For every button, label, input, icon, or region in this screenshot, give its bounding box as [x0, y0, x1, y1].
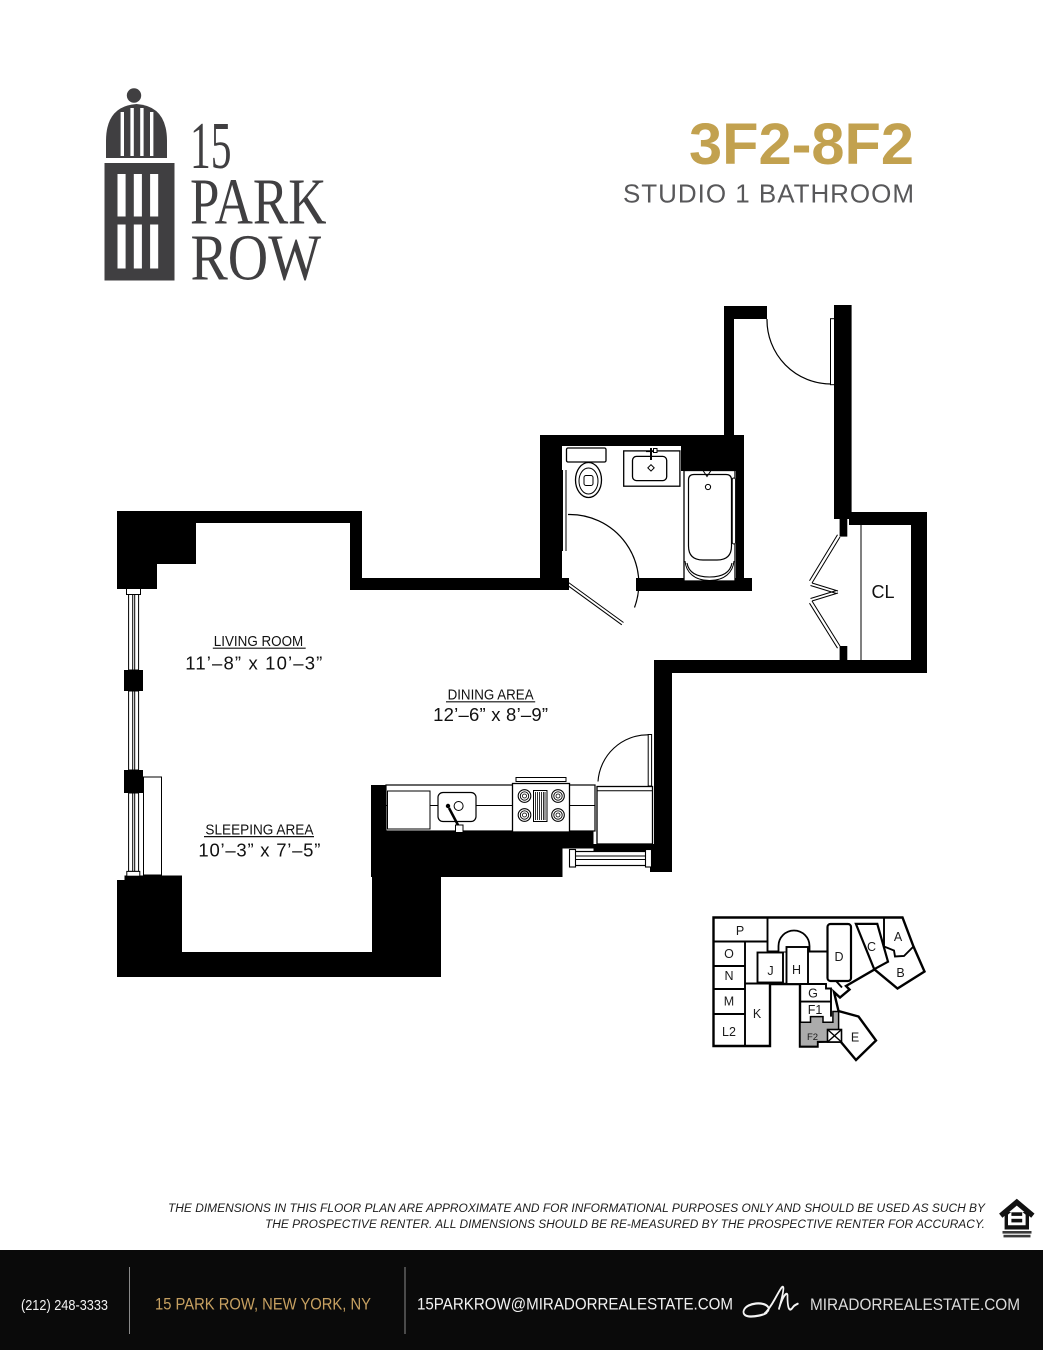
svg-text:15 PARK ROW, NEW YORK, NY: 15 PARK ROW, NEW YORK, NY — [155, 1296, 371, 1314]
svg-text:H: H — [792, 963, 801, 977]
svg-text:DINING AREA: DINING AREA — [448, 688, 534, 704]
svg-text:C: C — [867, 940, 876, 954]
svg-text:M: M — [724, 995, 734, 1009]
svg-text:11’–8” x 10’–3”: 11’–8” x 10’–3” — [185, 653, 322, 674]
svg-text:SLEEPING AREA: SLEEPING AREA — [205, 822, 313, 838]
svg-text:LIVING ROOM: LIVING ROOM — [214, 634, 304, 650]
svg-text:D: D — [834, 950, 843, 964]
svg-text:3F2-8F2: 3F2-8F2 — [689, 112, 914, 177]
svg-text:STUDIO 1 BATHROOM: STUDIO 1 BATHROOM — [623, 179, 914, 209]
svg-text:A: A — [894, 930, 903, 944]
svg-text:J: J — [767, 964, 773, 978]
svg-text:L2: L2 — [722, 1025, 736, 1039]
svg-text:12’–6” x 8’–9”: 12’–6” x 8’–9” — [433, 704, 548, 725]
svg-text:E: E — [851, 1031, 859, 1045]
svg-text:THE DIMENSIONS IN THIS FLOOR P: THE DIMENSIONS IN THIS FLOOR PLAN ARE AP… — [168, 1201, 987, 1215]
svg-text:G: G — [808, 987, 818, 1001]
svg-text:THE PROSPECTIVE RENTER. ALL DI: THE PROSPECTIVE RENTER. ALL DIMENSIONS S… — [265, 1217, 985, 1231]
svg-text:B: B — [896, 966, 904, 980]
svg-text:ROW: ROW — [191, 222, 322, 295]
svg-text:K: K — [753, 1007, 762, 1021]
svg-text:MIRADORREALESTATE.COM: MIRADORREALESTATE.COM — [810, 1295, 1020, 1314]
svg-text:N: N — [724, 969, 733, 983]
svg-text:10’–3” x 7’–5”: 10’–3” x 7’–5” — [198, 840, 320, 861]
svg-text:15PARKROW@MIRADORREALESTATE.CO: 15PARKROW@MIRADORREALESTATE.COM — [417, 1295, 733, 1314]
svg-text:F1: F1 — [808, 1003, 823, 1017]
svg-text:CL: CL — [871, 582, 894, 602]
svg-text:(212) 248-3333: (212) 248-3333 — [21, 1297, 108, 1314]
svg-text:P: P — [736, 924, 744, 938]
svg-text:F2: F2 — [807, 1032, 818, 1043]
svg-text:O: O — [724, 947, 734, 961]
